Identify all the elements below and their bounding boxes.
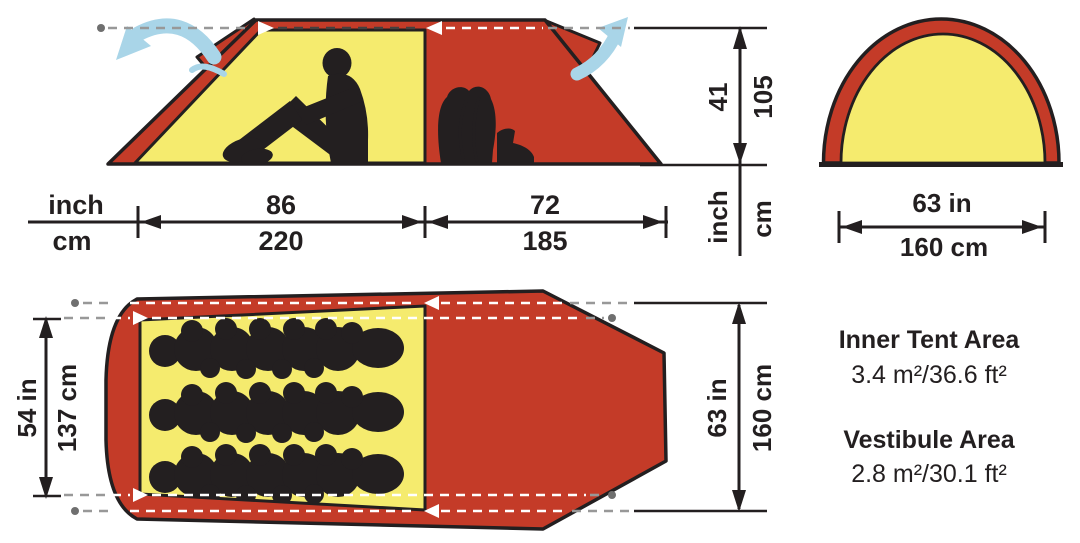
floor-plan bbox=[33, 291, 767, 529]
vestibule-area-title: Vestibule Area bbox=[843, 426, 1015, 454]
label-front-width-inch: 63 in bbox=[912, 188, 971, 218]
label-unit-inch: inch bbox=[48, 190, 104, 220]
label-inner-width-cm: 220 bbox=[258, 226, 303, 256]
label-plan-outer-width-cm: 160 cm bbox=[747, 364, 777, 452]
airflow-arrow-left-icon bbox=[116, 26, 224, 74]
label-height-unit-inch: inch bbox=[703, 190, 733, 243]
label-height-unit-cm: cm bbox=[747, 200, 777, 238]
vestibule-area-value: 2.8 m²/30.1 ft² bbox=[851, 460, 1007, 488]
label-plan-outer-width-inch: 63 in bbox=[702, 378, 732, 437]
label-inner-width-inch: 86 bbox=[266, 190, 296, 220]
label-unit-cm: cm bbox=[52, 226, 91, 256]
label-front-width-cm: 160 cm bbox=[900, 232, 988, 262]
diagram-canvas: inch cm 86 220 72 185 41 105 inch cm 63 … bbox=[0, 0, 1080, 543]
side-view bbox=[28, 17, 767, 256]
label-height-inch: 41 bbox=[703, 83, 733, 112]
label-vestibule-width-cm: 185 bbox=[522, 226, 567, 256]
sleeping-bags bbox=[149, 318, 404, 505]
inner-tent-area-title: Inner Tent Area bbox=[839, 326, 1021, 354]
area-info: Inner Tent Area 3.4 m²/36.6 ft² Vestibul… bbox=[839, 326, 1021, 488]
width-dimension bbox=[28, 206, 668, 238]
tent-spec-diagram: inch cm 86 220 72 185 41 105 inch cm 63 … bbox=[0, 0, 1080, 543]
inner-tent-area-value: 3.4 m²/36.6 ft² bbox=[851, 361, 1007, 389]
label-plan-inner-width-cm: 137 cm bbox=[52, 364, 82, 452]
label-plan-inner-width-inch: 54 in bbox=[12, 378, 42, 437]
label-vestibule-width-inch: 72 bbox=[530, 190, 560, 220]
label-height-cm: 105 bbox=[748, 75, 778, 118]
